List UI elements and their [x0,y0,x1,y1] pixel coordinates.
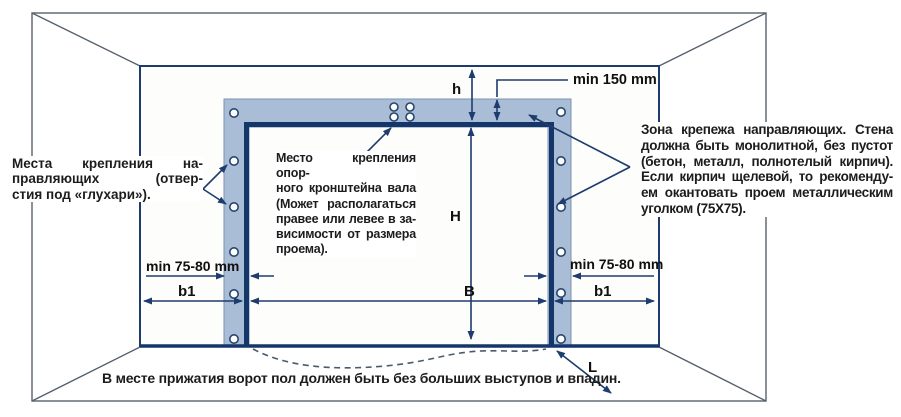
hole [230,290,238,298]
note-line: ем окантовать проем металлическим [641,185,893,201]
hole [230,248,238,256]
note-line: (бетон, металл, полнотелый кирпич). [641,154,893,170]
hole [557,335,565,343]
B-label: B [464,283,475,300]
note-line: (Может располагаться [276,197,416,212]
h-label: h [452,81,461,98]
min75-left-label: min 75-80 mm [146,258,239,274]
perspective-line-bottom-right [659,347,766,401]
note-line: Зона крепежа направляющих. Стена [641,122,893,138]
hole [557,157,565,165]
hole [230,203,238,211]
note-line: стия под «глухари»). [12,187,203,202]
hole [230,335,238,343]
hole [557,108,565,116]
note-line: Места крепления на- [12,156,203,171]
note-mounting-zone-wall-requirements: Зона крепежа направляющих. Стена должна … [641,122,893,217]
H-label: H [450,208,461,225]
note-floor-flatness: В месте прижатия ворот пол должен быть б… [102,370,621,386]
perspective-line-top-left [32,13,140,66]
note-line: Если кирпич щелевой, то рекоменду- [641,169,893,185]
note-line: правее или левее в за- [276,212,416,227]
hole [230,109,238,117]
note-line: должна быть монолитной, без пустот [641,138,893,154]
note-line: проема). [276,242,416,257]
min150-label: min 150 mm [573,72,657,88]
shaft-bracket-hole [390,103,398,111]
hole [557,248,565,256]
perspective-line-top-right [659,13,766,66]
garage-opening-diagram: h H min 150 mm B b1 b1 min 75-80 mm min … [0,0,901,417]
note-shaft-bracket-location: Место крепления опор- ного кронштейна ва… [276,151,416,257]
note-line: уголком (75X75). [641,201,893,217]
b1-left-label: b1 [178,283,196,300]
note-line: Место крепления опор- [276,151,416,181]
uneven-floor-dashed-curve [253,349,546,368]
shaft-bracket-hole [406,103,414,111]
shaft-bracket-hole [406,113,414,121]
note-line: висимости от размера [276,227,416,242]
note-line: правляющих (отвер- [12,171,203,186]
hole [557,289,565,297]
min75-right-label: min 75-80 mm [570,256,663,272]
hole [230,157,238,165]
note-line: ного кронштейна вала [276,181,416,196]
shaft-bracket-hole [390,113,398,121]
note-rail-fastening-points: Места крепления на- правляющих (отвер- с… [12,156,203,202]
b1-right-label: b1 [594,283,612,300]
